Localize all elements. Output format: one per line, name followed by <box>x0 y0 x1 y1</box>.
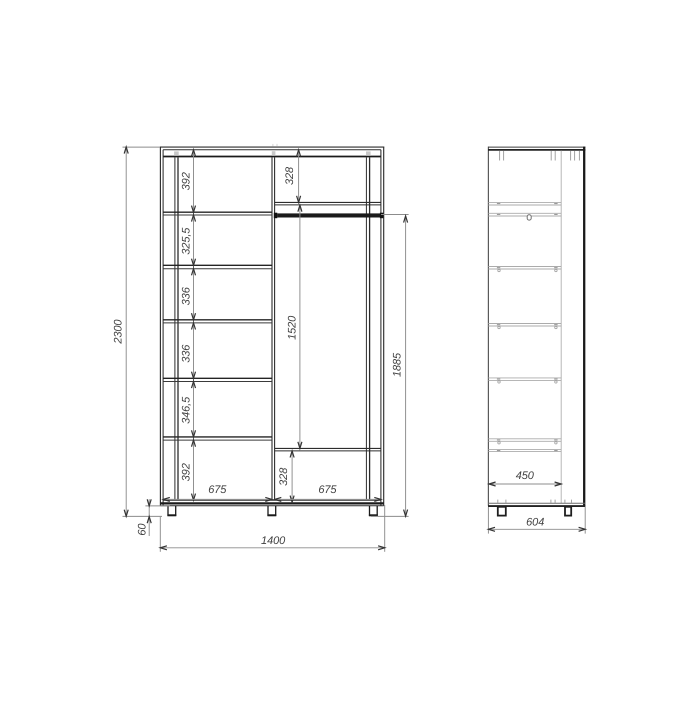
svg-text:450: 450 <box>516 470 535 482</box>
svg-text:392: 392 <box>181 463 193 481</box>
svg-text:336: 336 <box>181 286 193 305</box>
svg-text:2300: 2300 <box>113 319 125 345</box>
svg-text:675: 675 <box>318 484 337 496</box>
svg-text:328: 328 <box>278 467 290 486</box>
svg-text:336: 336 <box>181 344 193 363</box>
svg-text:1885: 1885 <box>392 352 404 377</box>
svg-text:325,5: 325,5 <box>181 227 193 255</box>
svg-text:675: 675 <box>208 484 227 496</box>
svg-text:604: 604 <box>526 516 544 528</box>
svg-text:392: 392 <box>181 172 193 190</box>
svg-text:328: 328 <box>284 166 296 185</box>
svg-text:346,5: 346,5 <box>181 396 193 424</box>
svg-text:60: 60 <box>136 523 148 536</box>
svg-text:1520: 1520 <box>287 315 299 340</box>
svg-text:1400: 1400 <box>261 535 286 547</box>
